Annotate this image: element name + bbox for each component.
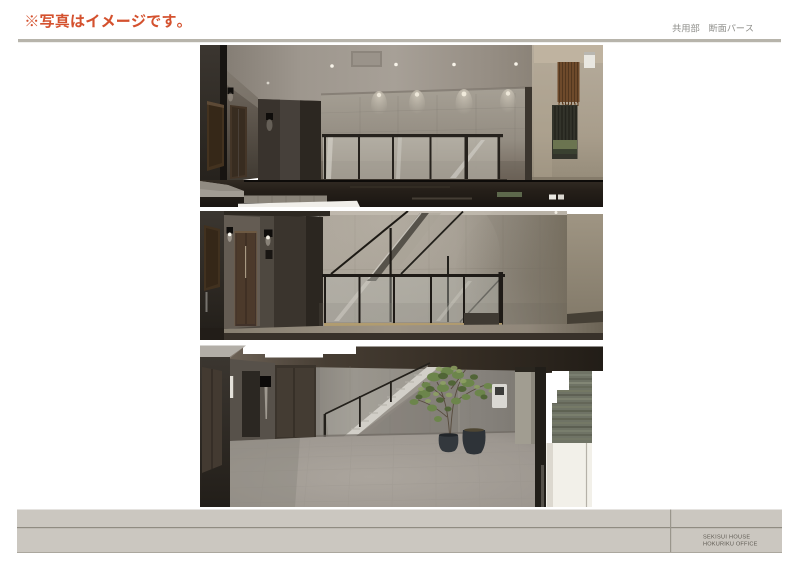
svg-text:SEKISUI HOUSE: SEKISUI HOUSE bbox=[703, 535, 750, 541]
svg-text:HOKURIKU OFFICE: HOKURIKU OFFICE bbox=[703, 542, 758, 548]
